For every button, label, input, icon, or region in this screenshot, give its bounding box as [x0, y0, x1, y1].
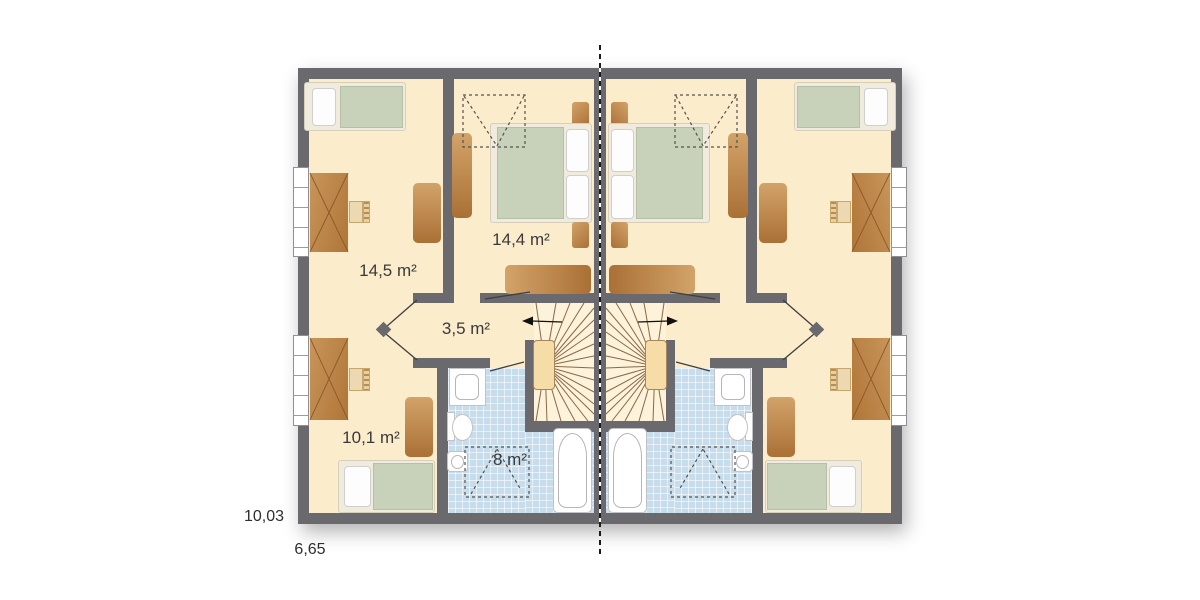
wardrobe — [609, 265, 695, 294]
interior-wall-stub — [746, 293, 787, 303]
hallway-area-label: 3,5 m² — [442, 319, 490, 339]
chair-back — [830, 201, 837, 223]
dimension-depth: 10,03 — [244, 508, 284, 526]
desk — [852, 338, 890, 420]
chair — [837, 201, 851, 223]
room-area-label: 14,4 m² — [492, 230, 550, 250]
interior-wall-bedroom-stair — [606, 293, 720, 303]
stairwell-wall-left — [666, 340, 675, 432]
window — [891, 167, 907, 257]
dimension-width: 6,65 — [294, 541, 325, 559]
stair-newel — [645, 340, 667, 390]
wardrobe — [767, 397, 795, 457]
desk — [852, 173, 890, 252]
pillow — [829, 466, 856, 507]
shower-basin — [721, 374, 745, 400]
wardrobe — [759, 183, 787, 243]
chair — [837, 368, 851, 391]
floor-plan-canvas: 14,5 m² 14,4 m² 3,5 m² 10,1 m² 8 m² 10,0… — [0, 0, 1200, 600]
exterior-wall-top — [600, 68, 902, 79]
exterior-wall-bottom — [600, 513, 902, 524]
bed-blanket — [797, 86, 860, 128]
bathtub-inner — [613, 433, 642, 508]
sink-basin — [736, 455, 749, 469]
nightstand — [611, 222, 628, 248]
toilet-bowl — [727, 414, 748, 441]
room-area-label: 14,5 m² — [359, 261, 417, 281]
property-boundary-dashed-line — [599, 45, 601, 557]
exterior-wall-left — [891, 68, 902, 524]
window — [891, 335, 907, 426]
interior-wall-bath-left — [752, 358, 763, 513]
interior-wall-hall-bath — [710, 358, 787, 368]
pillow — [611, 129, 634, 172]
bed-blanket — [767, 463, 827, 510]
bed-blanket — [636, 127, 703, 219]
room-area-label: 10,1 m² — [342, 428, 400, 448]
chair-back — [830, 368, 837, 391]
wardrobe — [728, 133, 748, 218]
bathroom-area-label: 8 m² — [493, 450, 527, 470]
pillow — [864, 88, 888, 126]
pillow — [611, 175, 634, 219]
